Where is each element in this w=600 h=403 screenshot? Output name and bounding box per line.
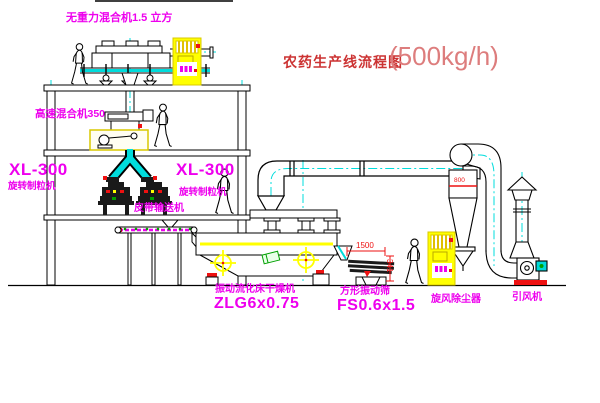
granulator-left [98, 182, 134, 215]
dryer-stub-nozzles [264, 218, 340, 233]
label-high-speed-mixer: 高速混合机350 [35, 109, 105, 120]
label-sieve-name: 方形振动筛 [340, 287, 390, 297]
building-slab-lower [44, 215, 250, 220]
label-dryer-model: ZLG6x0.75 [214, 296, 299, 312]
building-slab-top [44, 85, 250, 91]
dimension-sieve-height: 341 [385, 259, 393, 272]
building-slab-middle [44, 150, 250, 156]
control-cabinet-1 [173, 38, 201, 85]
cabinet2-display-marks [435, 266, 447, 272]
label-belt-conveyor: 皮带输送机 [134, 204, 184, 214]
cyclone-outlet-elbow [450, 144, 472, 166]
diagram-title-capacity: (500kg/h) [389, 41, 499, 72]
label-granulator-left-name: 旋转制粒机 [8, 182, 56, 192]
label-gravity-mixer: 无重力混合机1.5 立方 [66, 13, 172, 24]
person-ground [406, 239, 424, 283]
person-second-floor [155, 104, 172, 146]
dryer-hood [250, 210, 337, 218]
person-top-floor [72, 44, 88, 84]
control-cabinet-2 [428, 232, 455, 285]
label-dryer-name: 振动流化床干燥机 [215, 285, 295, 295]
label-granulator-right-model: XL-300 [176, 161, 235, 178]
exhaust-stack [508, 177, 536, 258]
label-sieve-model: FS0.6x1.5 [337, 298, 415, 314]
label-draft-fan: 引风机 [512, 293, 542, 303]
fluid-bed-dryer [196, 210, 352, 285]
dimension-sieve-length: 1500 [356, 242, 374, 250]
draft-fan [514, 258, 547, 285]
cabinet1-display-marks [180, 66, 192, 72]
dimension-cyclone-diameter: 800 [454, 178, 465, 185]
diagram-title: 农药生产线流程图 [283, 52, 403, 72]
label-granulator-left-model: XL-300 [9, 161, 68, 178]
process-flow-diagram: 农药生产线流程图 (500kg/h) 无重力混合机1.5 立方 高速混合机350… [0, 0, 600, 403]
label-granulator-right-name: 旋转制粒机 [179, 188, 227, 198]
label-cyclone: 旋风除尘器 [431, 295, 481, 305]
cabinet1-indicator-red [196, 44, 200, 48]
sieve-red-mark [364, 271, 371, 277]
duct-to-hood-funnel [258, 196, 284, 210]
belt-conveyor [115, 220, 198, 285]
fan-base [514, 280, 547, 285]
